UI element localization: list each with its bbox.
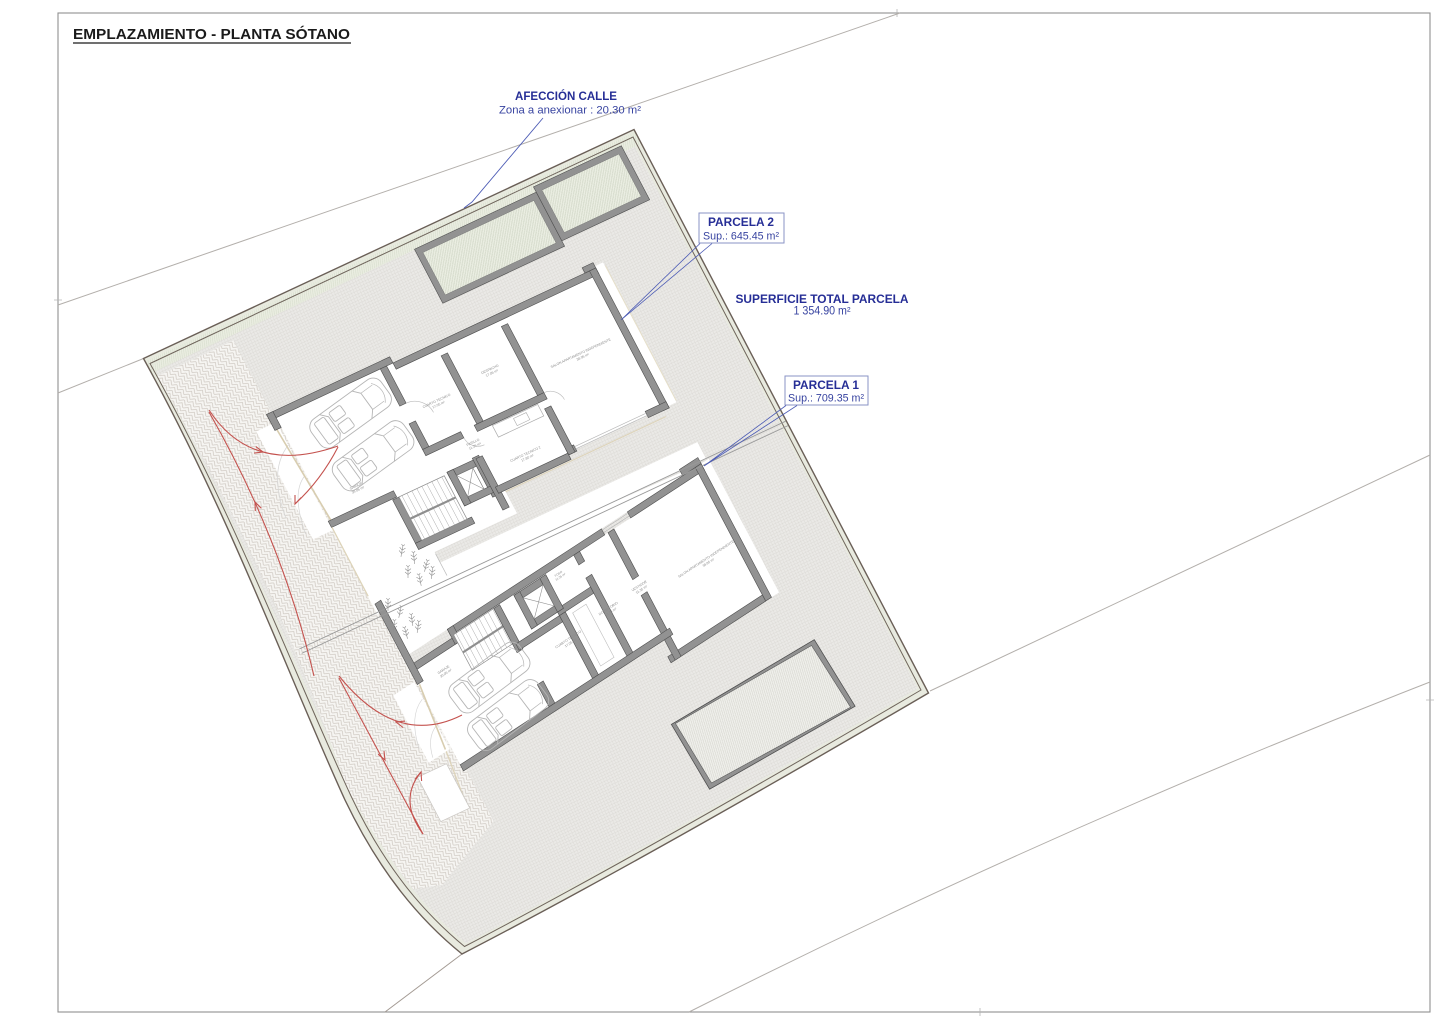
svg-text:EMPLAZAMIENTO - PLANTA SÓTANO: EMPLAZAMIENTO - PLANTA SÓTANO	[73, 25, 350, 43]
svg-text:AFECCIÓN CALLE: AFECCIÓN CALLE	[515, 88, 617, 103]
svg-text:Sup.: 709.35 m²: Sup.: 709.35 m²	[788, 393, 864, 405]
svg-text:SUPERFICIE TOTAL PARCELA: SUPERFICIE TOTAL PARCELA	[736, 292, 909, 306]
svg-text:Zona a anexionar : 20.30 m²: Zona a anexionar : 20.30 m²	[499, 105, 641, 117]
svg-text:1 354.90 m²: 1 354.90 m²	[794, 306, 851, 318]
svg-text:PARCELA 1: PARCELA 1	[793, 378, 859, 392]
svg-text:Sup.: 645.45 m²: Sup.: 645.45 m²	[703, 231, 779, 243]
svg-text:PARCELA 2: PARCELA 2	[708, 215, 774, 229]
